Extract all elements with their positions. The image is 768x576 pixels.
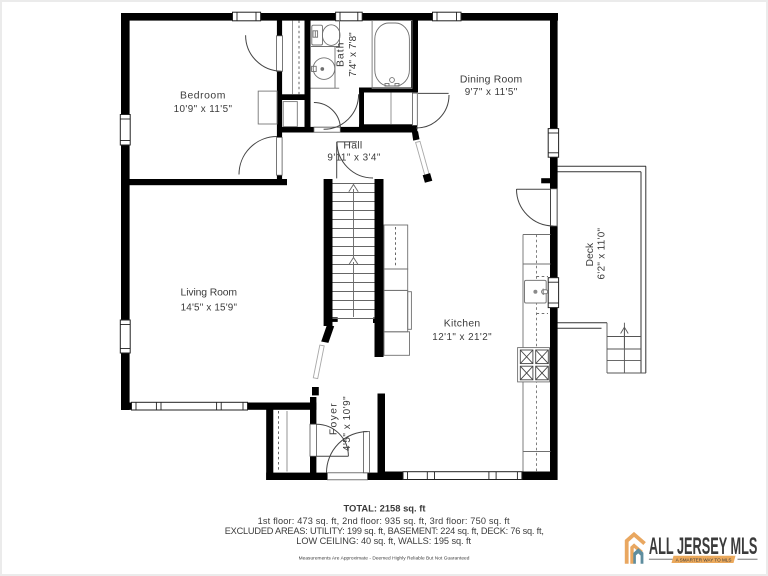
svg-text:LOW CEILING: 40 sq. ft, WALLS:: LOW CEILING: 40 sq. ft, WALLS: 195 sq. f… [296, 536, 471, 546]
svg-text:1st floor: 473 sq. ft, 2nd flo: 1st floor: 473 sq. ft, 2nd floor: 935 sq… [258, 516, 510, 526]
svg-text:9'7" x 11'5": 9'7" x 11'5" [465, 87, 518, 98]
svg-text:Kitchen: Kitchen [444, 319, 481, 330]
svg-text:6'2" x 11'0": 6'2" x 11'0" [597, 227, 608, 279]
svg-text:A SMARTER WAY TO MLS: A SMARTER WAY TO MLS [676, 557, 732, 562]
svg-text:EXCLUDED AREAS: UTILITY: 199 s: EXCLUDED AREAS: UTILITY: 199 sq. ft, BAS… [225, 526, 544, 536]
svg-text:Bedroom: Bedroom [180, 91, 225, 102]
svg-text:4'5" x 10'9": 4'5" x 10'9" [342, 396, 353, 451]
svg-text:Foyer: Foyer [328, 403, 339, 435]
svg-text:12'1" x 21'2": 12'1" x 21'2" [432, 332, 492, 343]
svg-text:Living Room: Living Room [181, 288, 237, 299]
svg-text:Hall: Hall [343, 140, 362, 151]
svg-text:Bath: Bath [335, 42, 346, 67]
svg-text:Deck: Deck [585, 242, 596, 266]
svg-text:9'11" x 3'4": 9'11" x 3'4" [327, 153, 380, 164]
svg-text:Measurements Are Approximate -: Measurements Are Approximate - Deemed Hi… [299, 556, 470, 562]
svg-text:Dining Room: Dining Room [460, 74, 522, 85]
svg-text:7'4" x 7'8": 7'4" x 7'8" [348, 32, 359, 77]
svg-text:10'9" x 11'5": 10'9" x 11'5" [174, 104, 233, 115]
svg-text:14'5" x 15'9": 14'5" x 15'9" [181, 302, 238, 313]
svg-text:TOTAL: 2158 sq. ft: TOTAL: 2158 sq. ft [344, 503, 426, 514]
